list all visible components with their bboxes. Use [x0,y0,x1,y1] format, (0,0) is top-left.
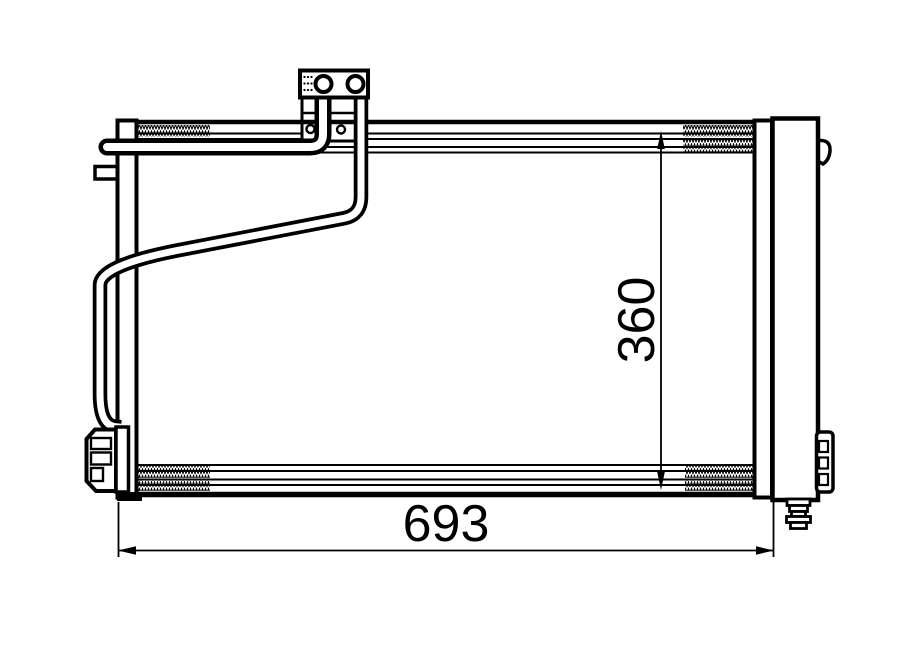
receiver-drier [773,119,819,501]
drier-side-block [817,432,834,492]
bracket-rivet-left [307,125,315,133]
bracket-bolt-hole-right [348,76,364,92]
height-dimension-label: 360 [608,277,666,364]
bracket-bolt-hole-left [316,76,332,92]
width-dimension-label: 693 [403,495,490,553]
condenser-technical-drawing-page: 693 360 [0,0,910,646]
pipe-connector-block [87,427,129,492]
condenser-technical-drawing: 693 360 [0,0,910,646]
bracket-rivet-right [337,126,345,134]
right-end-plate [755,121,773,498]
